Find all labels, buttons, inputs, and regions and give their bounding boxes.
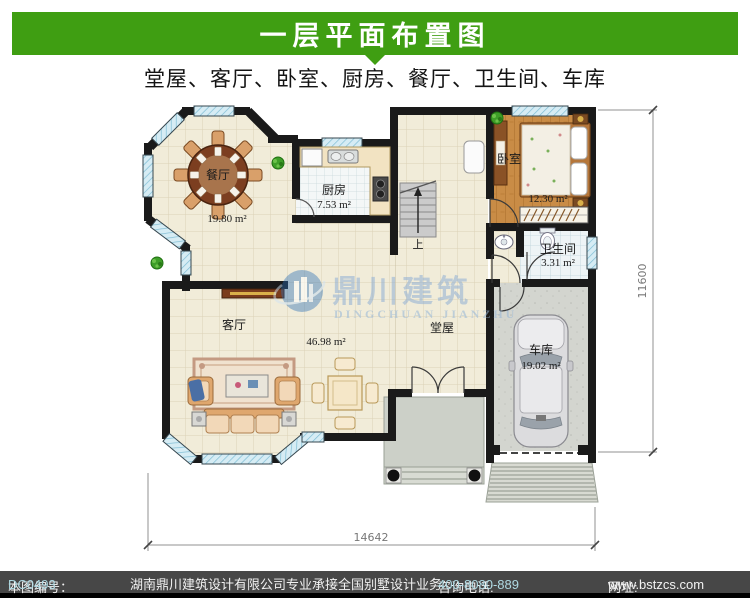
- bathroom-window: [587, 237, 597, 269]
- plant-icon: [491, 112, 503, 124]
- garage-label: 车库: [529, 342, 553, 357]
- page: { "banner": {"title": "一层平面布置图"}, "subti…: [0, 0, 750, 598]
- bedroom-area: 12.30 m²: [528, 193, 568, 205]
- dining-lower-left-window: [181, 251, 191, 275]
- coffee-table: [226, 375, 268, 397]
- kitchen-label: 厨房: [322, 182, 346, 197]
- dining-area: 19.80 m²: [207, 213, 247, 225]
- armchair-left: [188, 377, 213, 405]
- title-banner: 一层平面布置图: [12, 12, 738, 55]
- company-name: 湖南鼎川建筑设计有限公司专业承接全国别墅设计业务: [130, 574, 442, 593]
- dining-left-window: [143, 155, 153, 197]
- dining-table-set: 餐厅: [174, 131, 262, 219]
- footer-text-row: 本图编号：DC0493 湖南鼎川建筑设计有限公司专业承接全国别墅设计业务 咨询电…: [0, 571, 750, 593]
- bathroom-area: 3.31 m²: [541, 257, 576, 269]
- hall-label: 堂屋: [430, 321, 454, 335]
- page-title: 一层平面布置图: [260, 14, 491, 53]
- porch-slab: [384, 397, 484, 467]
- wardrobe: [520, 207, 588, 223]
- dining-top-window: [194, 106, 234, 116]
- footer-bar: 本图编号：DC0493 湖南鼎川建筑设计有限公司专业承接全国别墅设计业务 咨询电…: [0, 571, 750, 598]
- watermark-cn: 鼎川建筑: [332, 274, 472, 309]
- dimension-width: 14642: [354, 531, 389, 544]
- watermark-en: DINGCHUAN JIANZHU: [334, 307, 517, 321]
- bedroom-window: [512, 106, 568, 116]
- bed: [520, 123, 590, 197]
- armchair-right: [275, 377, 300, 405]
- bay-bottom-window: [202, 454, 272, 464]
- vestibule-sink: [495, 235, 513, 249]
- garage-area: 19.02 m²: [521, 360, 561, 372]
- water-heater: [464, 141, 484, 173]
- living-bottom-window: [302, 432, 324, 442]
- vestibule-floor: [490, 225, 520, 283]
- kitchen-sink: [328, 150, 358, 163]
- dimension-height: 11600: [636, 264, 649, 299]
- dining-label: 餐厅: [206, 167, 230, 182]
- bedroom-label: 卧室: [497, 151, 521, 166]
- fridge: [302, 149, 322, 166]
- plant-icon: [151, 257, 163, 269]
- living-label: 客厅: [222, 317, 246, 332]
- stairs-up-label: 上: [413, 238, 424, 251]
- stove: [373, 177, 388, 201]
- sofa: [204, 409, 284, 433]
- living-area: 46.98 m²: [306, 336, 346, 348]
- room-list-subtitle: 堂屋、客厅、卧室、厨房、餐厅、卫生间、车库: [0, 63, 750, 93]
- car: [509, 315, 573, 447]
- bathroom-label: 卫生间: [540, 242, 576, 256]
- floor-plan: 上 餐厅 19.80 m²: [100, 95, 660, 575]
- kitchen-area: 7.53 m²: [317, 199, 352, 211]
- plant-icon: [272, 157, 284, 169]
